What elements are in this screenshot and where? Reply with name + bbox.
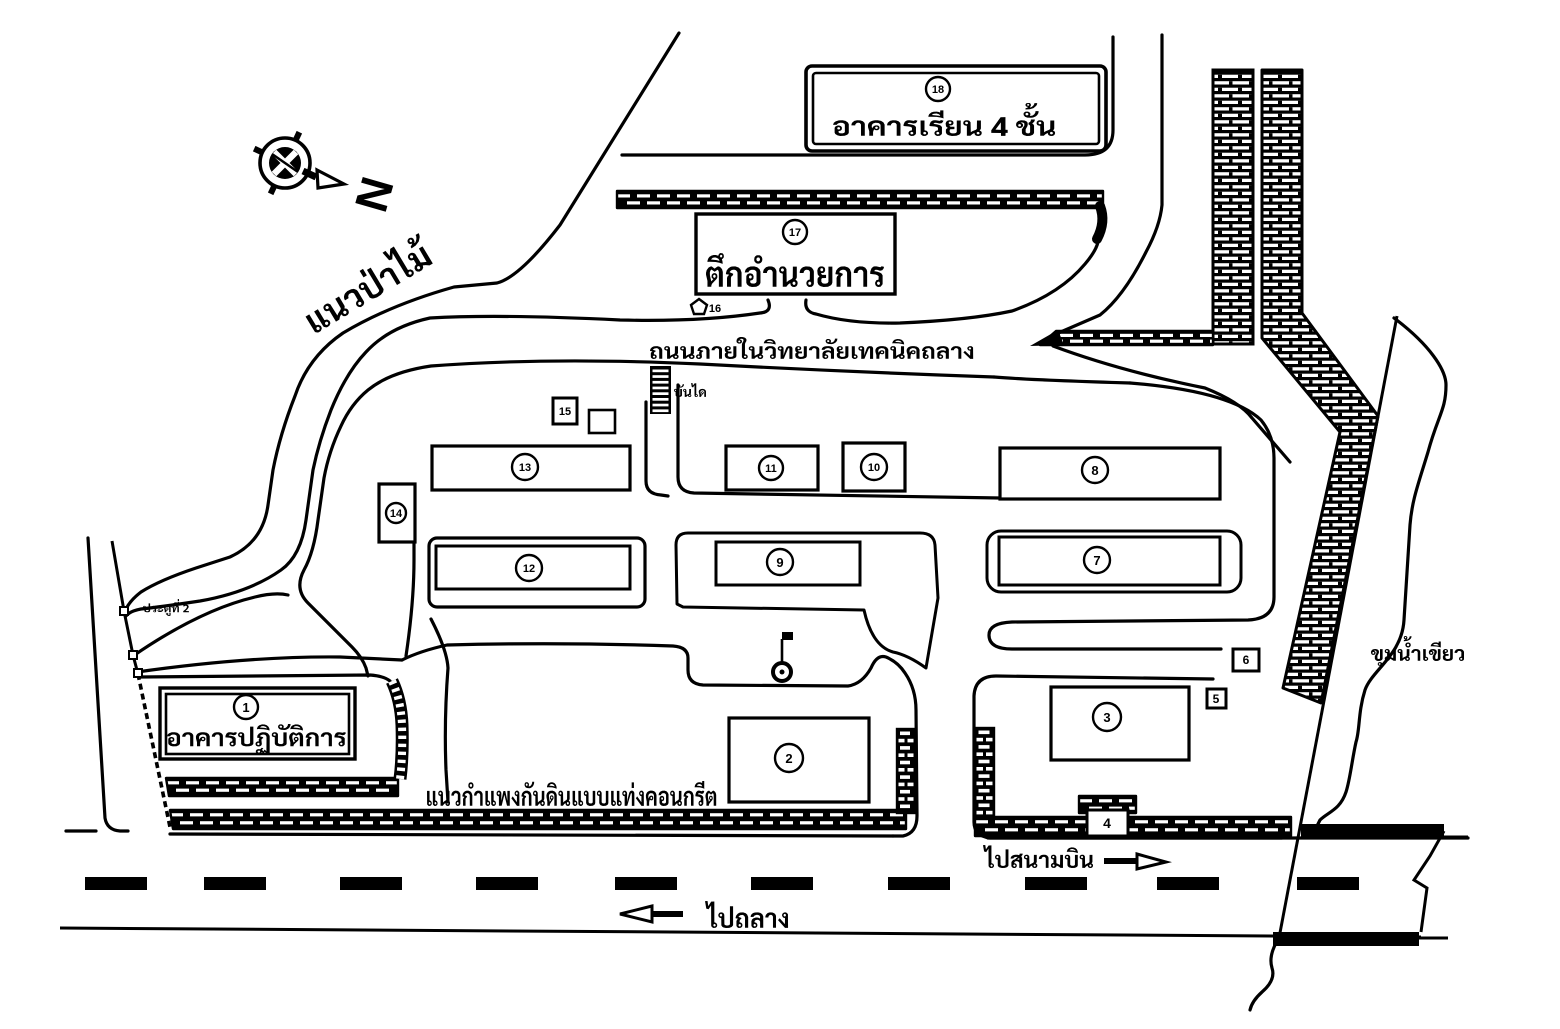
svg-text:18: 18 bbox=[932, 84, 944, 96]
svg-text:4: 4 bbox=[1103, 815, 1111, 831]
svg-text:13: 13 bbox=[519, 462, 531, 474]
svg-text:6: 6 bbox=[1243, 653, 1250, 667]
svg-text:12: 12 bbox=[523, 563, 535, 575]
svg-text:1: 1 bbox=[242, 700, 249, 715]
svg-text:5: 5 bbox=[1213, 692, 1220, 706]
svg-text:11: 11 bbox=[765, 463, 777, 475]
svg-text:15: 15 bbox=[559, 406, 571, 418]
svg-text:7: 7 bbox=[1093, 553, 1100, 568]
svg-text:8: 8 bbox=[1091, 463, 1098, 478]
svg-text:17: 17 bbox=[789, 227, 801, 239]
svg-text:16: 16 bbox=[709, 303, 721, 315]
svg-text:2: 2 bbox=[785, 751, 792, 766]
svg-text:9: 9 bbox=[776, 555, 783, 570]
svg-text:10: 10 bbox=[868, 462, 880, 474]
svg-text:14: 14 bbox=[390, 508, 403, 520]
svg-text:3: 3 bbox=[1103, 710, 1110, 725]
